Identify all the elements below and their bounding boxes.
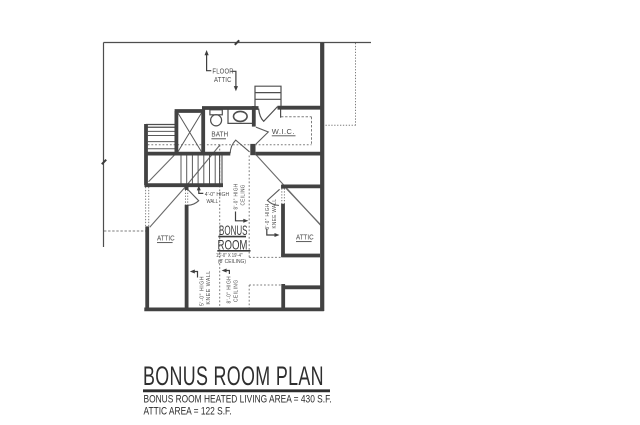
svg-text:8'-0" HIGH: 8'-0" HIGH [226,276,232,304]
svg-text:CEILING: CEILING [233,279,239,302]
svg-text:KNEE WALL: KNEE WALL [272,199,278,229]
svg-text:ATTIC: ATTIC [214,77,232,85]
svg-text:8'-0" HIGH: 8'-0" HIGH [233,183,239,209]
svg-text:FLOOR: FLOOR [212,68,233,76]
svg-text:ATTIC: ATTIC [296,234,314,241]
svg-text:4'-0" HIGH: 4'-0" HIGH [205,192,230,198]
svg-text:ATTIC: ATTIC [157,235,175,242]
svg-text:KNEE WALL: KNEE WALL [206,270,212,304]
svg-text:8'-0" HIGH: 8'-0" HIGH [265,203,271,229]
svg-text:5'-0" HIGH: 5'-0" HIGH [199,276,205,306]
svg-text:CEILING: CEILING [240,184,246,205]
svg-text:BATH: BATH [211,131,228,139]
svg-text:W.I.C.: W.I.C. [272,127,295,136]
svg-text:BONUS ROOM HEATED LIVING AREA: BONUS ROOM HEATED LIVING AREA = 430 S.F. [144,393,332,406]
svg-text:ATTIC AREA = 122 S.F.: ATTIC AREA = 122 S.F. [144,405,232,418]
svg-text:BONUS ROOM PLAN: BONUS ROOM PLAN [143,362,324,391]
svg-text:(8' CEILING): (8' CEILING) [218,259,246,265]
svg-text:WALL: WALL [207,198,219,205]
